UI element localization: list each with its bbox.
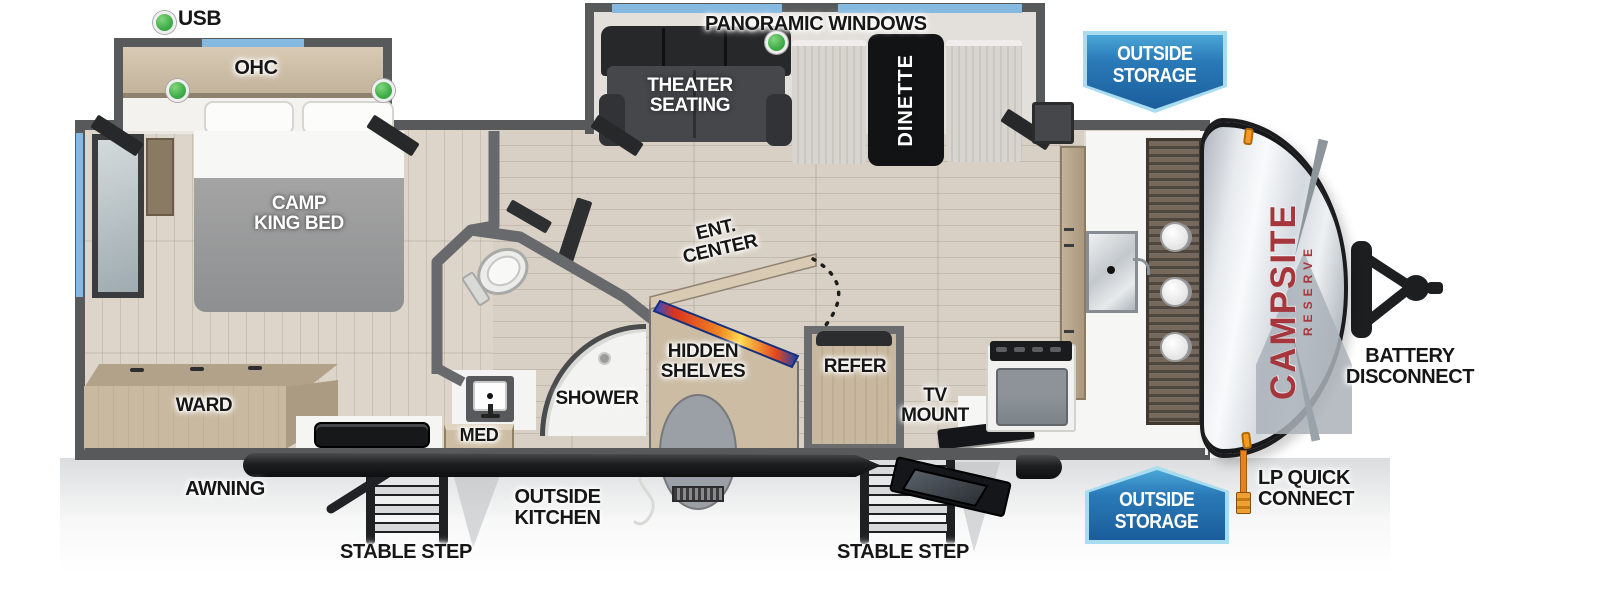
brand-series: RESERVE: [1302, 202, 1314, 336]
outside-storage-bottom-line2: STORAGE: [1115, 511, 1199, 533]
usb-port-dot-left: [166, 79, 189, 102]
panoramic-windows-dot: [765, 31, 788, 54]
marker-light-top: [1243, 128, 1254, 146]
ward-label: WARD: [164, 396, 244, 416]
refer-top-band: [816, 331, 892, 346]
front-cap: CAMPSITE RESERVE: [1200, 118, 1348, 458]
dinette-label: DINETTE: [895, 54, 918, 147]
living-slide-window-right: [838, 4, 1022, 13]
stove-burner-2: [1014, 347, 1025, 352]
nightstand: [146, 138, 174, 216]
ward-handle-3: [248, 366, 262, 370]
shower-drain: [598, 352, 611, 365]
bed-pillow-area: [194, 131, 404, 179]
floorplan-canvas: DINETTE: [0, 0, 1600, 596]
dinette-bench-left: [792, 40, 866, 164]
camp-king-bed-label: CAMP KING BED: [234, 194, 364, 234]
dinette-bench-right: [946, 40, 1022, 162]
brand-name: CAMPSITE: [1266, 194, 1301, 400]
ward-handle-1: [130, 368, 144, 372]
med-label: MED: [450, 426, 508, 445]
outside-storage-top-line2: STORAGE: [1113, 65, 1197, 87]
stove-burner-3: [1032, 347, 1043, 352]
battery-disconnect-label: BATTERY DISCONNECT: [1345, 346, 1475, 388]
refer-label: REFER: [810, 357, 900, 377]
outside-storage-top-line1: OUTSIDE: [1117, 43, 1192, 65]
marker-light-bottom: [1241, 432, 1252, 450]
bar-stool-3: [1160, 332, 1190, 362]
usb-port-dot-right: [372, 79, 395, 102]
stable-step-left-label: STABLE STEP: [340, 542, 470, 563]
stable-step-right-label: STABLE STEP: [837, 542, 967, 563]
panoramic-windows-label: PANORAMIC WINDOWS: [705, 14, 905, 35]
outside-kitchen-griddle: [314, 422, 430, 448]
rear-window-strip: [76, 133, 83, 297]
awning-roller: [243, 453, 881, 477]
outside-storage-badge-top: OUTSIDE STORAGE: [1083, 31, 1227, 113]
pantry-handle-3: [1064, 330, 1074, 333]
lp-pipe: [1240, 450, 1247, 494]
lp-connector: [1236, 492, 1251, 514]
ohc-label: OHC: [226, 58, 286, 79]
hidden-shelves-label: HIDDEN SHELVES: [648, 342, 758, 382]
dinette-table: DINETTE: [868, 34, 944, 166]
lp-quick-connect-label: LP QUICK CONNECT: [1258, 468, 1368, 510]
stove-burner-1: [996, 347, 1007, 352]
ward-handle-2: [190, 367, 204, 371]
shower-label: SHOWER: [552, 389, 642, 409]
outside-storage-bottom-line1: OUTSIDE: [1119, 489, 1194, 511]
awning-label: AWNING: [180, 479, 270, 500]
bar-stool-1: [1160, 222, 1190, 252]
med-faucet-bar: [481, 414, 500, 418]
kitchen-sink-drain: [1107, 266, 1115, 274]
theater-armrest-right: [766, 94, 792, 146]
tv-mount-label: TV MOUNT: [895, 386, 975, 426]
pillow-left: [204, 101, 294, 135]
hitch-graphic: [1351, 241, 1443, 338]
stove-burner-4: [1050, 347, 1061, 352]
usb-legend-dot: [153, 11, 176, 34]
pantry-handle-2: [1064, 244, 1074, 247]
outside-kitchen-label: OUTSIDE KITCHEN: [505, 487, 610, 529]
kitchen-overhead-cabinet: [1032, 102, 1074, 144]
theater-seating-label: THEATER SEATING: [630, 76, 750, 116]
usb-legend-label: USB: [178, 8, 221, 30]
med-sink-drain: [487, 393, 493, 399]
ward-top-face: [84, 364, 338, 388]
pantry-handle-1: [1064, 228, 1074, 231]
bar-stool-2: [1160, 277, 1190, 307]
awning-roller-right: [1016, 455, 1062, 479]
rear-window: [92, 134, 144, 298]
living-slide-window-left: [612, 4, 782, 13]
stove-oven-door: [996, 368, 1068, 426]
vent-grille-2: [672, 486, 724, 502]
